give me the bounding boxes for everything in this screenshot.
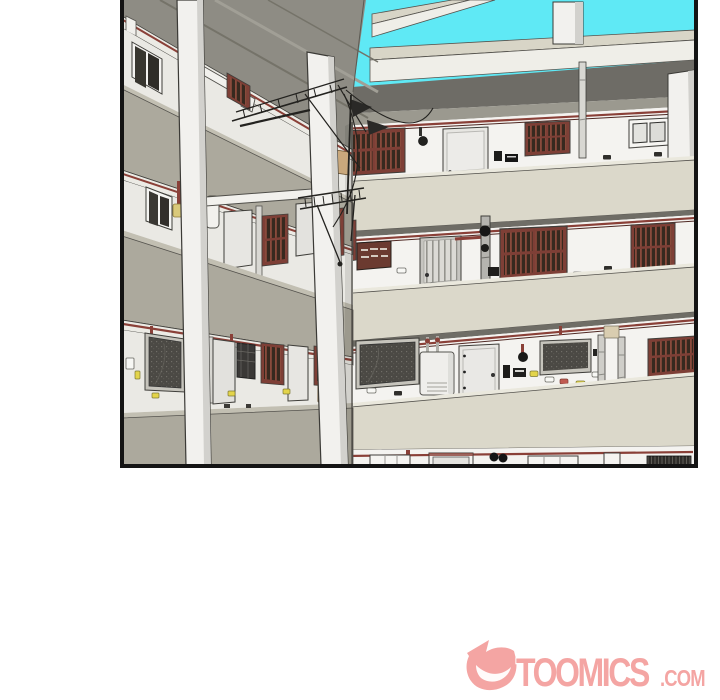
vent: [545, 377, 554, 382]
lattice-window: [631, 223, 675, 272]
gas-meter: [152, 393, 159, 398]
gas-meter: [135, 371, 140, 379]
roof-column: [553, 2, 583, 44]
downpipe: [579, 62, 586, 158]
mesh-window: [540, 339, 591, 375]
toomics-logo-icon: [467, 640, 517, 690]
downpipe: [256, 206, 262, 276]
vent: [394, 391, 402, 396]
vent: [654, 152, 662, 157]
toomics-watermark: TOOMICS .COM: [467, 640, 705, 695]
slat-door: [420, 236, 461, 286]
lattice-window: [648, 336, 695, 377]
door: [288, 345, 308, 401]
toomics-logo-suffix: .COM: [660, 666, 705, 691]
sign-plaque: [357, 241, 391, 270]
lattice-window: [500, 226, 567, 279]
parapet: [122, 408, 353, 466]
page: TOOMICS .COM: [0, 0, 720, 700]
hatch-window: [237, 343, 255, 379]
corner-column: [668, 70, 695, 166]
tag: [560, 379, 568, 384]
gas-meter: [530, 371, 538, 377]
lattice-window: [261, 343, 284, 385]
lattice-window: [262, 214, 288, 266]
lattice-window: [525, 121, 570, 156]
door: [224, 210, 252, 269]
window: [370, 455, 410, 465]
comic-panel: TOOMICS .COM: [0, 0, 720, 700]
door: [443, 127, 488, 176]
window: [604, 453, 620, 465]
junction-box: [503, 365, 510, 378]
gas-meter: [228, 391, 235, 396]
electric-meter: [513, 368, 526, 377]
window: [629, 118, 669, 148]
toomics-logo-text: TOOMICS: [516, 650, 649, 695]
vent: [367, 388, 376, 393]
mesh-window: [356, 338, 419, 389]
socket-box: [126, 358, 134, 369]
gas-meter: [283, 389, 290, 394]
mesh-window: [145, 333, 185, 392]
vent: [397, 268, 406, 273]
vent: [603, 155, 611, 160]
